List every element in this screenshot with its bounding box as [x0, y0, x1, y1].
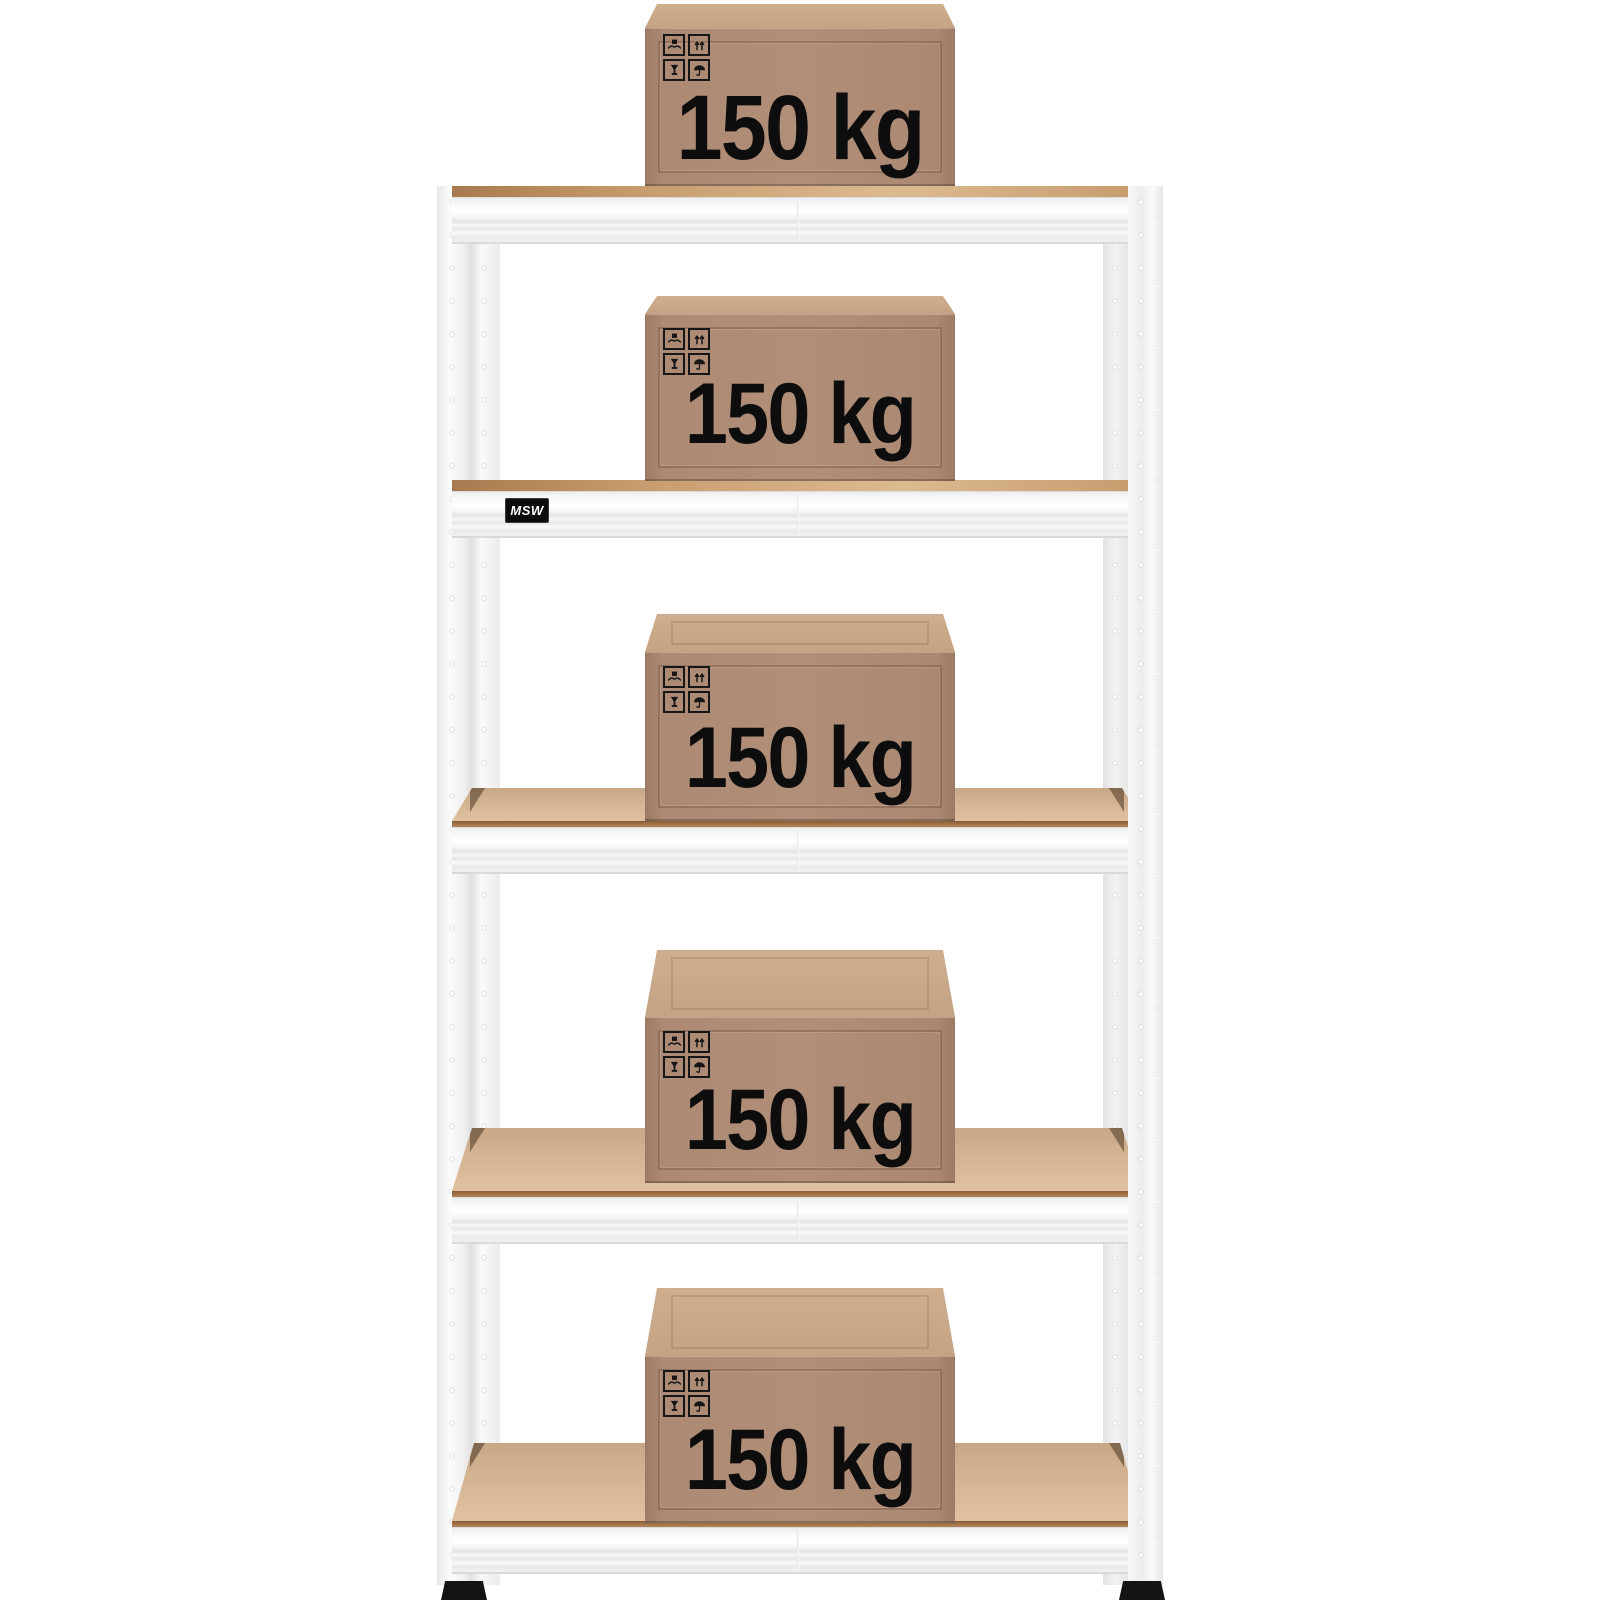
fragile-icon [663, 353, 685, 375]
cardboard-box: 150 kg [645, 1356, 955, 1523]
keep-dry-icon [688, 691, 710, 713]
packaging-pictograms [663, 666, 710, 713]
handle-with-care-icon [663, 34, 685, 56]
cardboard-box-top [645, 4, 955, 28]
box-weight-label: 150 kg [661, 1077, 940, 1163]
this-way-up-icon [688, 1031, 710, 1053]
cardboard-box-top [645, 296, 955, 314]
fragile-icon [663, 59, 685, 81]
cardboard-box: 150 kg [645, 28, 955, 186]
shelf-corner-bracket [1109, 1128, 1124, 1152]
shelf-corner-bracket [470, 788, 485, 812]
rack-post-left [437, 186, 500, 1585]
box-weight-label: 150 kg [661, 1417, 940, 1503]
handle-with-care-icon [663, 666, 685, 688]
rack-post-right-front [1128, 186, 1163, 1585]
handle-with-care-icon [663, 328, 685, 350]
packaging-pictograms [663, 34, 710, 81]
fragile-icon [663, 1395, 685, 1417]
brand-badge: MSW [505, 498, 549, 523]
cardboard-box: 150 kg [645, 1017, 955, 1183]
cardboard-box: 150 kg [645, 314, 955, 481]
cardboard-box-top [645, 614, 955, 652]
shelf-beam-4 [452, 1197, 1142, 1244]
cardboard-box-top [645, 950, 955, 1017]
product-image: MSW 150 kg 150 kg [0, 0, 1600, 1600]
rack-post-right-back [1103, 186, 1128, 1585]
this-way-up-icon [688, 328, 710, 350]
rack-foot-left [441, 1581, 487, 1600]
shelf-beam-2 [452, 491, 1142, 538]
packaging-pictograms [663, 328, 710, 375]
shelf-corner-bracket [1109, 788, 1124, 812]
box-weight-label: 150 kg [661, 715, 940, 801]
rack-foot-right [1119, 1581, 1165, 1600]
shelf-beam-1 [452, 197, 1142, 244]
handle-with-care-icon [663, 1370, 685, 1392]
shelf-corner-bracket [470, 1128, 485, 1152]
fragile-icon [663, 691, 685, 713]
keep-dry-icon [688, 1395, 710, 1417]
fragile-icon [663, 1056, 685, 1078]
this-way-up-icon [688, 666, 710, 688]
box-weight-label: 150 kg [661, 82, 940, 174]
this-way-up-icon [688, 1370, 710, 1392]
box-weight-label: 150 kg [661, 371, 940, 457]
keep-dry-icon [688, 1056, 710, 1078]
cardboard-box: 150 kg [645, 652, 955, 821]
this-way-up-icon [688, 34, 710, 56]
handle-with-care-icon [663, 1031, 685, 1053]
packaging-pictograms [663, 1370, 710, 1417]
shelf-beam-5 [452, 1527, 1142, 1574]
cardboard-box-top [645, 1288, 955, 1356]
packaging-pictograms [663, 1031, 710, 1078]
keep-dry-icon [688, 353, 710, 375]
keep-dry-icon [688, 59, 710, 81]
shelf-beam-3 [452, 827, 1142, 874]
